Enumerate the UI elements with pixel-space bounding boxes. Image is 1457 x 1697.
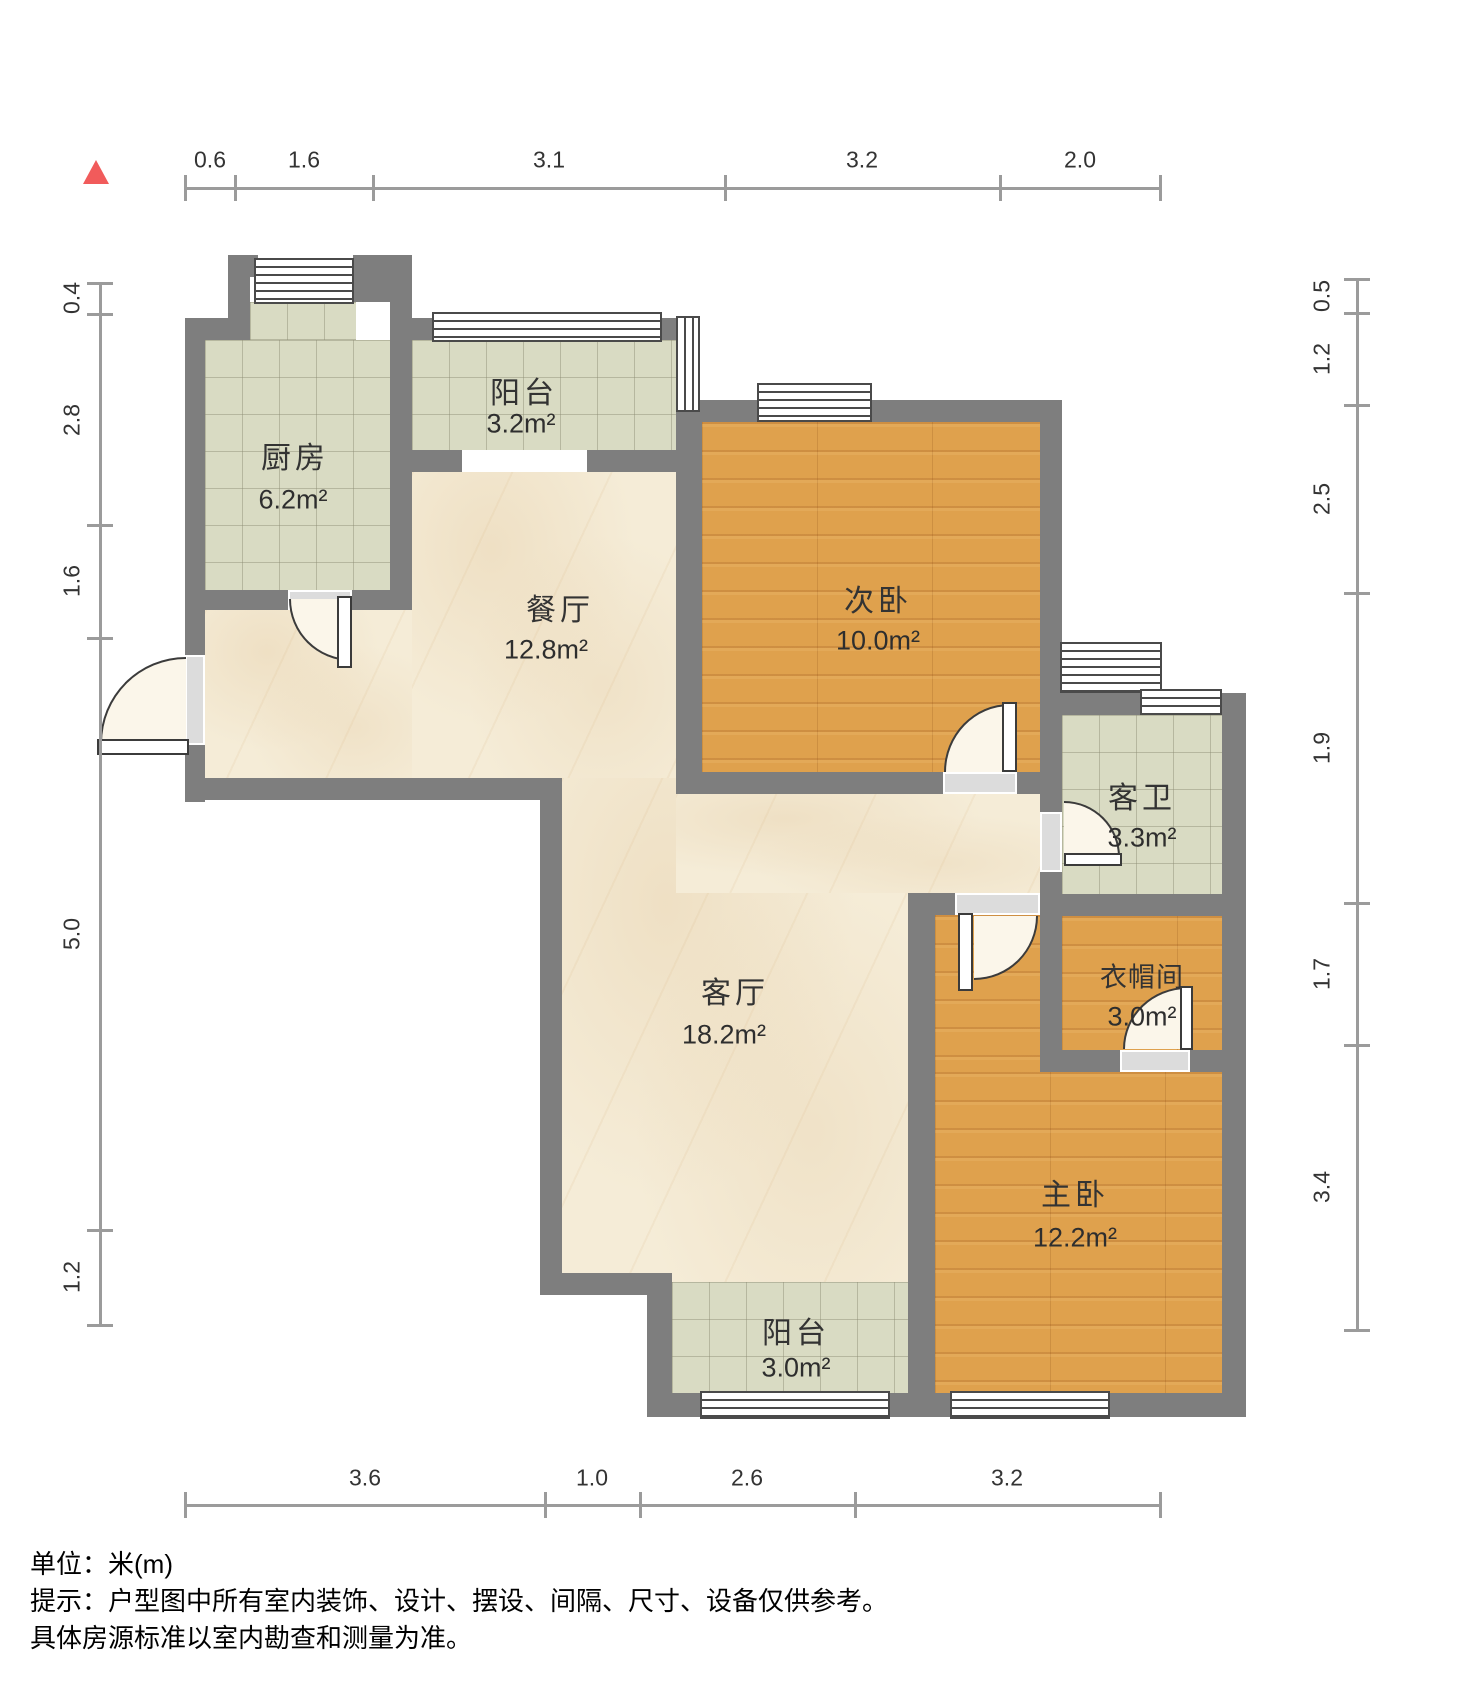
window-bedroom2 xyxy=(757,383,872,422)
wall-segment xyxy=(205,590,288,610)
dim-tick xyxy=(1344,312,1370,315)
dim-label-left-4: 1.2 xyxy=(59,1261,86,1293)
wall-segment xyxy=(870,400,1040,422)
dim-label-top-2: 3.1 xyxy=(533,147,565,174)
footer-notes: 单位：米(m) 提示：户型图中所有室内装饰、设计、摆设、间隔、尺寸、设备仅供参考… xyxy=(30,1546,888,1657)
room-label-balcony-bottom: 阳台 xyxy=(762,1308,830,1352)
room-area-kitchen: 6.2m² xyxy=(258,485,327,516)
north-triangle-icon xyxy=(83,160,109,184)
dim-tick xyxy=(1344,1329,1370,1332)
window-master xyxy=(950,1391,1110,1419)
window-bathroom-bay xyxy=(1060,642,1162,693)
dim-line-left xyxy=(99,283,102,1326)
dim-tick xyxy=(1344,404,1370,407)
dim-line-bottom xyxy=(185,1504,1161,1507)
dim-tick xyxy=(1159,1492,1162,1518)
dim-tick xyxy=(87,282,113,285)
window-balcony-bottom xyxy=(700,1391,890,1419)
door-panel-closet xyxy=(1180,986,1193,1050)
dim-label-right-3: 1.9 xyxy=(1309,732,1336,764)
dim-tick xyxy=(854,1492,857,1518)
room-area-closet: 3.0m² xyxy=(1107,1002,1176,1033)
room-area-bathroom: 3.3m² xyxy=(1107,823,1176,854)
wall-segment xyxy=(702,400,759,422)
wall-segment xyxy=(676,400,702,794)
dim-label-top-4: 2.0 xyxy=(1064,147,1096,174)
floor-kitchen-bay xyxy=(250,302,356,340)
window-balcony-side xyxy=(676,316,700,412)
room-area-living: 18.2m² xyxy=(682,1020,766,1051)
dim-tick xyxy=(87,524,113,527)
wall-segment xyxy=(908,893,935,1417)
room-label-kitchen: 厨房 xyxy=(261,433,329,477)
footer-unit: 单位：米(m) xyxy=(30,1546,888,1583)
wall-segment xyxy=(1222,693,1246,1417)
dim-label-left-2: 1.6 xyxy=(59,565,86,597)
dim-tick xyxy=(1344,902,1370,905)
dim-tick xyxy=(87,313,113,316)
dim-tick xyxy=(87,1324,113,1327)
dim-label-right-1: 1.2 xyxy=(1309,343,1336,375)
dim-tick xyxy=(87,1229,113,1232)
doorway-bathroom xyxy=(1042,814,1060,870)
dim-tick xyxy=(372,175,375,201)
dim-tick xyxy=(1344,1044,1370,1047)
dim-tick xyxy=(184,1492,187,1518)
room-label-balcony-top: 阳台 xyxy=(490,368,558,412)
wall-segment xyxy=(1040,400,1062,812)
dim-tick xyxy=(87,637,113,640)
floor-hallway xyxy=(676,794,1040,893)
wall-segment xyxy=(1040,894,1246,916)
door-arc-entry xyxy=(100,657,186,743)
room-area-dining: 12.8m² xyxy=(504,635,588,666)
doorway-entry xyxy=(187,657,203,743)
footer-note2: 具体房源标准以室内勘查和测量为准。 xyxy=(30,1620,888,1657)
wall-segment xyxy=(352,590,412,610)
window-balcony-top xyxy=(432,312,662,342)
window-kitchen xyxy=(254,258,354,304)
dim-label-left-1: 2.8 xyxy=(59,404,86,436)
dim-tick xyxy=(999,175,1002,201)
dim-label-bottom-0: 3.6 xyxy=(349,1465,381,1492)
dim-label-right-5: 3.4 xyxy=(1309,1171,1336,1203)
room-area-balcony-top: 3.2m² xyxy=(486,409,555,440)
room-label-master: 主卧 xyxy=(1041,1170,1109,1214)
dim-label-right-0: 0.5 xyxy=(1309,280,1336,312)
wall-segment xyxy=(1017,772,1040,794)
dim-tick xyxy=(1159,175,1162,201)
dim-label-bottom-2: 2.6 xyxy=(731,1465,763,1492)
wall-segment xyxy=(540,778,562,1295)
doorway-closet xyxy=(1122,1052,1188,1070)
door-panel-entry xyxy=(97,739,189,755)
dim-line-right xyxy=(1356,279,1359,1331)
dim-tick xyxy=(544,1492,547,1518)
dim-label-top-3: 3.2 xyxy=(846,147,878,174)
door-panel-bathroom xyxy=(1064,853,1122,866)
floorplan-page: 厨房 6.2m² 阳台 3.2m² 餐厅 12.8m² 次卧 10.0m² 客卫… xyxy=(0,0,1457,1697)
dim-tick xyxy=(184,175,187,201)
wall-segment xyxy=(1040,1050,1120,1072)
wall-segment xyxy=(587,450,678,472)
room-label-living: 客厅 xyxy=(701,968,769,1012)
dim-label-right-4: 1.7 xyxy=(1309,958,1336,990)
wall-segment xyxy=(185,318,205,655)
dim-tick xyxy=(1344,592,1370,595)
dim-tick xyxy=(639,1492,642,1518)
window-bathroom xyxy=(1140,689,1222,715)
dim-label-top-1: 1.6 xyxy=(288,147,320,174)
footer-note1: 提示：户型图中所有室内装饰、设计、摆设、间隔、尺寸、设备仅供参考。 xyxy=(30,1583,888,1620)
dim-label-right-2: 2.5 xyxy=(1309,483,1336,515)
dim-tick xyxy=(234,175,237,201)
room-label-closet: 衣帽间 xyxy=(1100,956,1184,995)
dim-label-left-0: 0.4 xyxy=(59,282,86,314)
dim-label-bottom-3: 3.2 xyxy=(991,1465,1023,1492)
door-panel-kitchen xyxy=(337,596,352,668)
wall-segment xyxy=(390,255,412,610)
room-area-master: 12.2m² xyxy=(1033,1223,1117,1254)
door-panel-master xyxy=(958,913,973,991)
room-label-dining: 餐厅 xyxy=(526,585,594,629)
wall-segment xyxy=(185,778,540,800)
dim-tick xyxy=(1344,278,1370,281)
door-panel-bedroom2 xyxy=(1002,702,1017,772)
room-area-bedroom2: 10.0m² xyxy=(836,626,920,657)
wall-segment xyxy=(702,772,943,794)
dim-label-bottom-1: 1.0 xyxy=(576,1465,608,1492)
wall-segment xyxy=(412,450,462,472)
dim-label-left-3: 5.0 xyxy=(59,918,86,950)
doorway-master xyxy=(957,895,1038,913)
room-label-bathroom: 客卫 xyxy=(1108,773,1176,817)
doorway-bedroom2 xyxy=(945,774,1015,792)
room-label-bedroom2: 次卧 xyxy=(844,576,912,620)
dim-label-top-0: 0.6 xyxy=(194,147,226,174)
room-area-balcony-bottom: 3.0m² xyxy=(761,1353,830,1384)
dim-tick xyxy=(724,175,727,201)
dim-line-top xyxy=(185,187,1161,190)
